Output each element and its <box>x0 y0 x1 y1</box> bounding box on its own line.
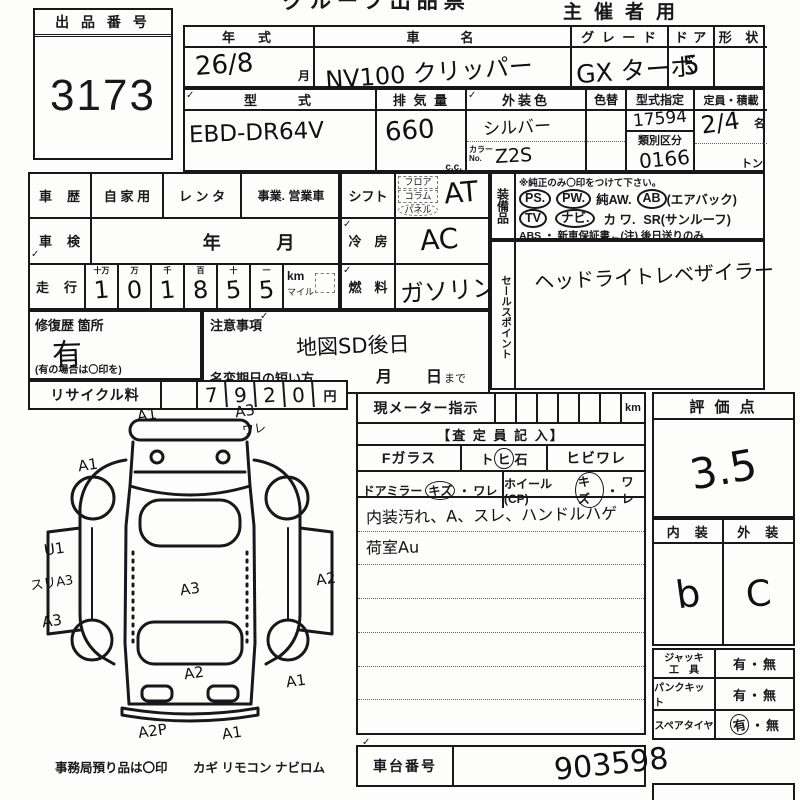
stone-chip-cell: トヒ石 <box>462 446 548 470</box>
color-no-label: カラーNo. <box>469 146 493 164</box>
year-header: 年 式 <box>185 27 315 48</box>
equip-navi: ナビ. <box>555 209 595 229</box>
damage-annotation: ワレ <box>241 418 267 438</box>
meter-label: 現メーター指示 <box>358 394 496 422</box>
damage-annotation: A1 <box>136 405 158 426</box>
equipment-note: ※純正のみ〇印をつけて下さい。 <box>519 175 760 189</box>
equipment-line3: ABS ・ 新車保証書←(注) 後日送りのみ <box>519 228 760 238</box>
glass-row: Fガラス トヒ石 ヒビワレ <box>358 446 644 472</box>
color-col: 外装色 シルバー カラーNo. Z2S <box>467 90 587 175</box>
mileage-row: 走 行 十万1 万0 千1 百8 十5 一5 km マイル <box>30 263 338 308</box>
jack-row: ジャッキ 工 具 有・無 <box>654 650 793 677</box>
damage-annotation: A1 <box>285 671 307 692</box>
note-line-blank <box>358 599 644 633</box>
equip-ps: PS. <box>519 189 551 209</box>
puncture-kit-value: 有・無 <box>716 679 793 709</box>
shift-opt-panel: パネル <box>398 204 438 217</box>
disp-header: 排 気 量 <box>377 90 465 111</box>
shift-label: シフト <box>342 174 396 217</box>
color-header: 外装色 <box>467 90 585 111</box>
equipment-box: 装備品 ※純正のみ〇印をつけて下さい。 PS. PW. 純AW. AB(エアバッ… <box>490 172 765 240</box>
puncture-kit-label: パンクキット <box>654 679 716 709</box>
km-unit: km <box>287 269 304 283</box>
exterior-label: 外 装 <box>724 520 794 544</box>
year-cell: 26/8 月 <box>185 48 315 86</box>
salespoint-box: セールスポイント ヘッドライトレベザイラー <box>490 240 765 390</box>
inspection-row: 車 検 年 月 <box>30 217 338 262</box>
history-private: 自 家 用 <box>92 174 164 217</box>
equipment-line1: PS. PW. 純AW. AB(エアバック) <box>519 189 760 209</box>
exhibit-box: 出 品 番 号 3173 <box>33 8 173 160</box>
capacity-col: 定員・積載 2/4 名 トン <box>695 90 767 175</box>
front-glass-label: Fガラス <box>358 446 462 470</box>
meter-digit-box <box>580 394 601 422</box>
note-line-blank <box>358 667 644 701</box>
meter-unit: km <box>622 394 644 422</box>
tick-mark: ✓ <box>260 311 268 322</box>
bottom-cut-box <box>652 783 795 800</box>
recolor-col: 色替 <box>587 90 627 175</box>
disp-col: 排 気 量 660 c.c. <box>377 90 467 175</box>
door-header: ド ア <box>669 27 715 48</box>
mileage-label: 走 行 <box>30 265 86 308</box>
office-note: 事務局預り品は〇印 カギ リモコン ナビロム <box>55 757 325 776</box>
exhibit-number: 3173 <box>35 37 171 155</box>
fuel-row: 燃 料 ガソリン <box>342 263 488 308</box>
history-rental: レ ン タ <box>164 174 242 217</box>
office-note-items: カギ リモコン ナビロム <box>193 761 325 775</box>
score-label: 評 価 点 <box>654 394 793 420</box>
repair-note: (有の場合は〇印を) <box>35 361 122 376</box>
assessor-box: 現メーター指示 km 【査 定 員 記 入】 Fガラス トヒ石 ヒビワレ ドアミ… <box>356 392 646 735</box>
approval-col: 型式指定 17594 類別区分 0166 <box>627 90 695 175</box>
chassis-box: 車台番号 903598 <box>356 745 646 787</box>
spare-tire-value: 有・無 <box>716 711 793 738</box>
mile-checkbox <box>315 273 335 293</box>
damage-annotation: A3 <box>234 401 256 422</box>
note-line-blank <box>358 633 644 667</box>
assessor-notes: 内装汚れ、A、スレ、ハンドルハゲ 荷室Au <box>358 498 644 733</box>
tick-mark: ✓ <box>31 249 39 260</box>
capacity-ton: トン <box>741 155 763 171</box>
vehicle-row1: 年 式 車 名 グ レ ー ド ド ア 形 状 26/8 月 NV100 クリッ… <box>183 25 765 88</box>
model-col: 型 式 EBD-DR64V <box>185 90 377 175</box>
name-cell: NV100 クリッパー <box>315 48 572 86</box>
tick-mark: ✓ <box>343 265 351 276</box>
drivetrain-box: シフト フロア コラム パネル AT 冷 房 AC 燃 料 ガソリン <box>340 172 490 310</box>
jack-value: 有・無 <box>716 650 793 677</box>
inspection-month: 月 <box>277 229 295 255</box>
interior-exterior-box: 内 装 外 装 b C <box>652 518 795 646</box>
name-header: 車 名 <box>315 27 572 48</box>
shape-cell <box>715 48 767 86</box>
meter-row: 現メーター指示 km <box>358 394 644 424</box>
shift-opt-floor: フロア <box>398 176 438 189</box>
repair-box: 修復歴 箇所 有 (有の場合は〇印を) <box>28 310 202 380</box>
recycle-label: リサイクル料 <box>30 382 162 408</box>
puncture-kit-row: パンクキット 有・無 <box>654 677 793 709</box>
rename-suffix: まで <box>444 370 466 386</box>
car-diagram: A1 A3 ワレ A1 U1 スリA3 A3 A3 A2 A2 A1 A2P A… <box>30 408 360 753</box>
chassis-label: 車台番号 <box>358 747 454 785</box>
auction-sheet: グループ出品票 主催者用 出 品 番 号 3173 年 式 車 名 グ レ ー … <box>0 0 800 800</box>
caution-label: 注意事項 <box>210 315 262 334</box>
tick-mark: ✓ <box>468 90 476 101</box>
tick-mark: ✓ <box>362 737 370 748</box>
grade-header: グ レ ー ド <box>572 27 669 48</box>
rename-day: 日 <box>426 363 442 387</box>
tick-mark: ✓ <box>186 90 194 101</box>
jack-label-1: ジャッキ <box>654 653 714 665</box>
tools-box: ジャッキ 工 具 有・無 パンクキット 有・無 スペアタイヤ 有・無 <box>652 648 795 740</box>
rename-month: 月 <box>376 363 392 387</box>
capacity-unit: 名 <box>754 115 765 131</box>
inspection-year: 年 <box>203 229 221 255</box>
damage-annotation: A3 <box>179 579 201 600</box>
note-line-blank <box>358 565 644 599</box>
recolor-header: 色替 <box>587 90 625 111</box>
damage-annotation: A2 <box>183 663 205 684</box>
model-header: 型 式 <box>185 90 375 111</box>
spare-tire-row: スペアタイヤ 有・無 <box>654 709 793 738</box>
note-line-blank <box>358 700 644 733</box>
shift-row: シフト フロア コラム パネル AT <box>342 174 488 217</box>
exhibit-label: 出 品 番 号 <box>35 10 171 37</box>
salespoint-label: セールスポイント <box>492 242 516 388</box>
assessor-header: 【査 定 員 記 入】 <box>358 424 644 446</box>
jack-label-2: 工 具 <box>654 665 714 677</box>
history-box: 車 歴 自 家 用 レ ン タ 事業. 営業車 車 検 年 月 走 行 十万1 … <box>28 172 340 310</box>
mile-unit: マイル <box>287 285 314 298</box>
year-unit: 月 <box>298 67 310 84</box>
equip-ab-note: (エアバック) <box>667 189 737 208</box>
recycle-unit: 円 <box>314 382 346 408</box>
equip-ab: AB <box>637 189 667 209</box>
equip-tv: TV <box>519 209 547 229</box>
damage-annotation: U1 <box>43 539 66 560</box>
equip-sr: SR(サンルーフ) <box>643 209 730 228</box>
meter-digit-box <box>559 394 580 422</box>
meter-digit-box <box>517 394 538 422</box>
meter-digit-box <box>538 394 559 422</box>
score-box: 評 価 点 3.5 <box>652 392 795 518</box>
shift-opt-column: コラム <box>398 190 438 203</box>
meter-digit-box <box>601 394 622 422</box>
history-row: 車 歴 自 家 用 レ ン タ 事業. 営業車 <box>30 174 338 217</box>
mirror-wheel-row: ドアミラー キズ・ワレ ホイール(CP) キズ・ワレ <box>358 472 644 498</box>
history-label: 車 歴 <box>30 174 92 217</box>
corner-label: 主催者用 <box>563 0 687 24</box>
interior-label: 内 装 <box>654 520 724 544</box>
meter-digit-box <box>496 394 517 422</box>
shape-header: 形 状 <box>715 27 767 48</box>
equip-kawa: カ ワ. <box>603 209 635 228</box>
damage-annotation: A3 <box>41 611 63 632</box>
ac-row: 冷 房 AC <box>342 217 488 262</box>
equip-aw: 純AW. <box>596 189 631 208</box>
damage-annotation: A1 <box>221 723 243 744</box>
grade-cell: GX ターボ <box>572 48 669 86</box>
damage-annotation: A2 <box>315 569 337 590</box>
equip-pw: PW. <box>556 189 591 209</box>
crack-label: ヒビワレ <box>548 446 644 470</box>
history-commercial: 事業. 営業車 <box>242 174 340 217</box>
recycle-empty-cell <box>162 382 198 408</box>
sheet-title-clipped: グループ出品票 <box>283 0 583 11</box>
damage-annotation: A1 <box>77 455 99 476</box>
office-note-label: 事務局預り品は〇印 <box>55 761 168 775</box>
tick-mark: ✓ <box>343 219 351 230</box>
equipment-line2: TV ナビ. カ ワ. SR(サンルーフ) <box>519 209 760 229</box>
equipment-label: 装備品 <box>492 174 516 238</box>
spare-tire-label: スペアタイヤ <box>654 711 716 738</box>
recycle-box: リサイクル料 7 9 2 0 円 <box>28 380 348 410</box>
